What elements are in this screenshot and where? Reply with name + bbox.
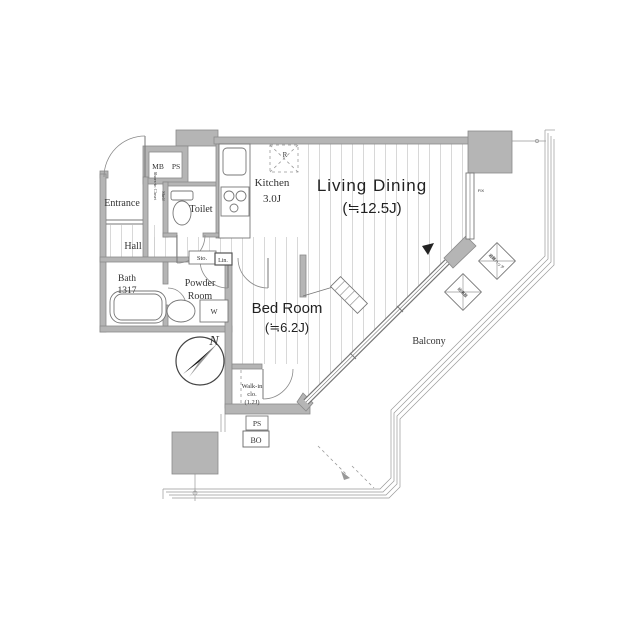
bedroom-size: (≒6.2J)	[265, 320, 309, 335]
kitchen-counter	[219, 144, 250, 238]
pillar-top-right	[468, 131, 512, 173]
pipe-shaft-label: PS	[253, 419, 261, 428]
wic-label-2: clo.	[247, 391, 257, 398]
entrance-step	[106, 220, 143, 224]
kitchen-label: Kitchen	[255, 177, 290, 189]
living-dining-size: (≒12.5J)	[342, 200, 401, 217]
bedroom-label: Bed Room	[252, 300, 323, 317]
living-dining-label: Living Dining	[317, 176, 427, 195]
shoes-closet-label: Shoes-in Closet	[153, 172, 158, 201]
refrigerator-label: R	[283, 151, 288, 159]
toilet-label: Toilet	[189, 204, 212, 215]
pillar-bottom-left	[172, 432, 218, 474]
kitchen-sink	[223, 148, 246, 175]
bath-label: Bath	[118, 274, 136, 284]
wic-label-1: Walk-in	[242, 383, 264, 390]
floor-plan-drawing: 避難ハッチ 給湯器 N Living Dining (≒12.5J) Bed R…	[0, 0, 640, 640]
north-label: N	[208, 334, 219, 349]
powder-label-2: Room	[188, 291, 213, 302]
closet-door-arc	[263, 369, 293, 399]
powder-sink	[167, 300, 195, 322]
entrance-label: Entrance	[104, 198, 140, 209]
storage-label: Sto.	[197, 255, 208, 262]
kitchen-size: 3.0J	[263, 193, 282, 205]
hall-label: Hall	[124, 241, 141, 252]
shelf-label: Shelf	[161, 191, 166, 201]
washer-label: W	[210, 307, 218, 316]
entrance-door-arc	[104, 136, 145, 177]
fix-window-label: FIX	[478, 188, 485, 193]
floor-plan-page: 避難ハッチ 給湯器 N Living Dining (≒12.5J) Bed R…	[0, 0, 640, 640]
mb-label: MB	[152, 162, 164, 171]
ps-label: PS	[172, 162, 180, 171]
evacuation-route	[318, 446, 374, 488]
powder-label-1: Powder	[185, 278, 216, 289]
water-heater: 給湯器	[445, 274, 482, 311]
bath-size: 1317	[118, 286, 137, 296]
evacuation-hatch: 避難ハッチ	[479, 243, 516, 280]
wic-label-3: (1.2J)	[245, 399, 260, 406]
balcony-label: Balcony	[412, 336, 445, 347]
compass: N	[176, 334, 224, 385]
bo-label: BO	[250, 436, 261, 445]
linen-label: Lin.	[218, 258, 228, 264]
